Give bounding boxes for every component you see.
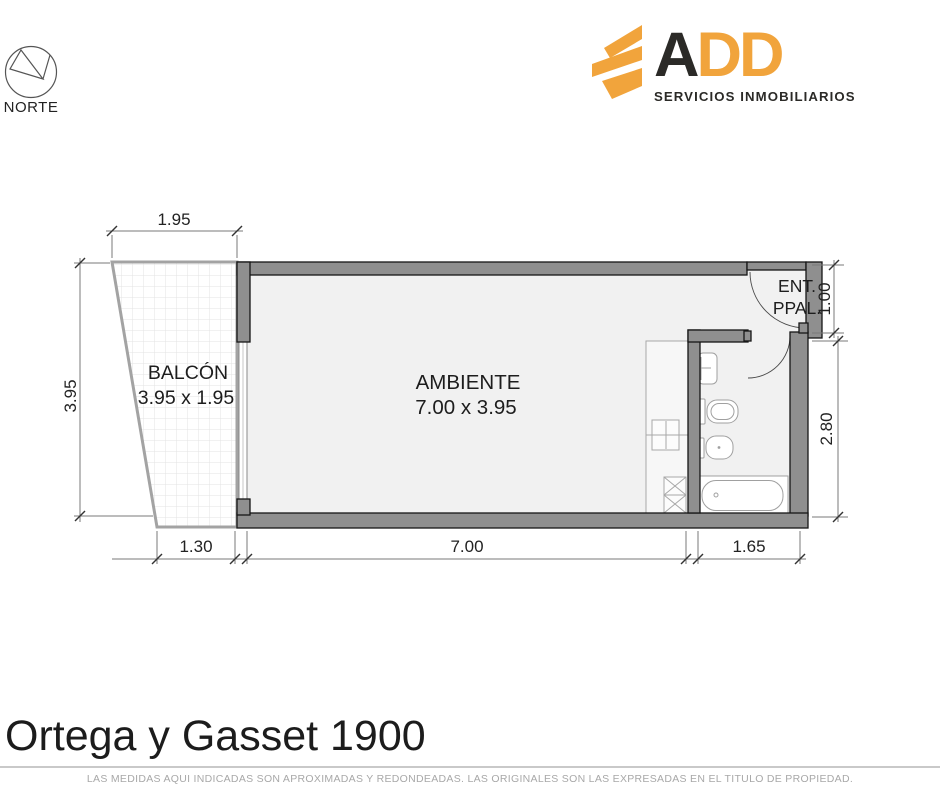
dim-bottom-balcony: 1.30	[179, 537, 212, 556]
balcony-window	[239, 342, 247, 499]
balcony-label: BALCÓN	[148, 361, 228, 384]
entrance-label-line2: PPAL.	[773, 298, 821, 318]
footer-divider	[0, 766, 940, 768]
page-title: Ortega y Gasset 1900	[5, 712, 426, 761]
floorplan-page: NORTE ADD SERVICIOS INMOBILIARIOS	[0, 0, 940, 788]
toilet-icon	[696, 399, 738, 424]
room-label: AMBIENTE	[416, 371, 521, 394]
dim-balcony-depth: 3.95	[61, 379, 80, 412]
bathtub-icon	[697, 476, 788, 515]
stove-icon	[664, 477, 686, 513]
dim-bottom-room: 7.00	[450, 537, 483, 556]
dim-bottom-bath: 1.65	[732, 537, 765, 556]
balcony-size-label: 3.95 x 1.95	[138, 387, 235, 409]
floor-plan: 1.95 3.95 1.30 7.00 1.65 1.00 2.80 BALCÓ…	[0, 0, 940, 788]
disclaimer-text: LAS MEDIDAS AQUI INDICADAS SON APROXIMAD…	[0, 773, 940, 785]
entrance-label-line1: ENT.	[778, 276, 816, 296]
bidet-icon	[697, 436, 733, 459]
kitchen-fixtures	[646, 341, 688, 513]
dim-bath-depth: 2.80	[817, 412, 836, 445]
room-size-label: 7.00 x 3.95	[415, 396, 516, 419]
dim-balcony-width: 1.95	[157, 210, 190, 229]
